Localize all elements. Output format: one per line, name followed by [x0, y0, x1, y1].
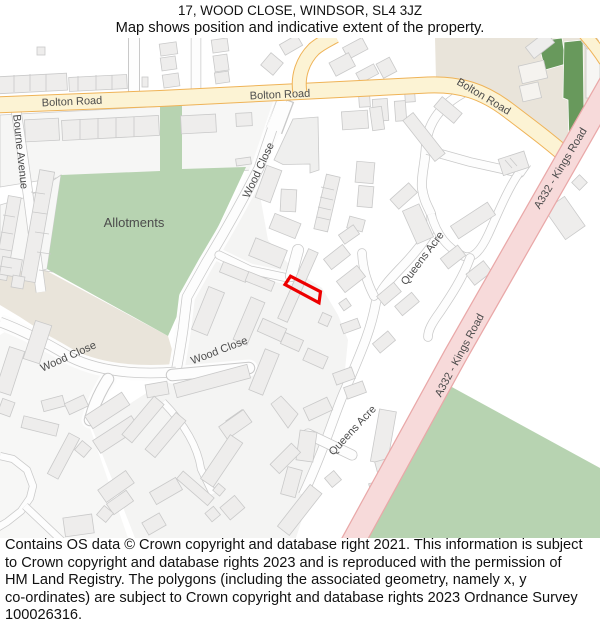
svg-text:Allotments: Allotments	[104, 215, 165, 230]
